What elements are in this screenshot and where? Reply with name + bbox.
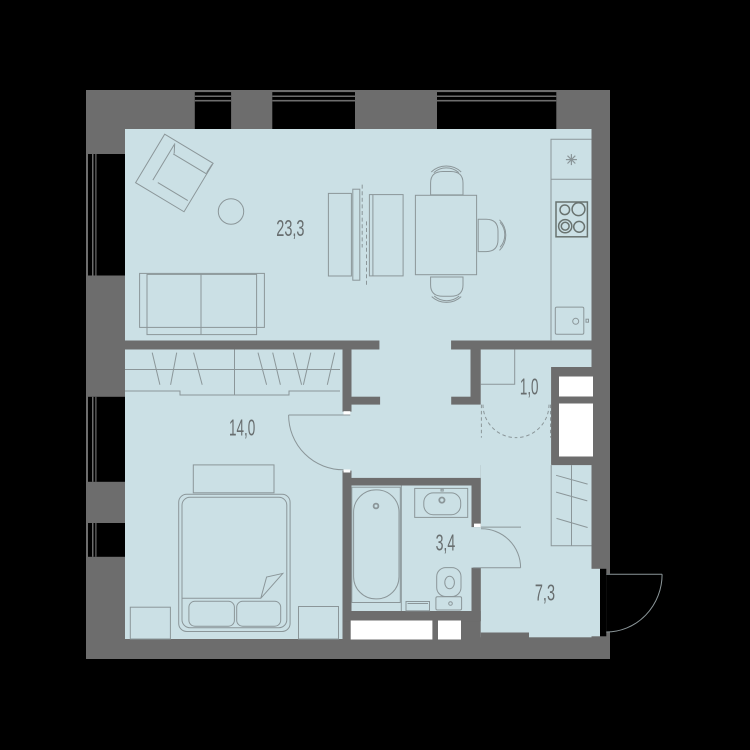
- svg-text:1,0: 1,0: [520, 373, 539, 399]
- svg-text:3,4: 3,4: [436, 530, 456, 556]
- svg-text:23,3: 23,3: [276, 215, 304, 241]
- svg-text:7,3: 7,3: [535, 580, 555, 606]
- svg-text:14,0: 14,0: [229, 414, 255, 440]
